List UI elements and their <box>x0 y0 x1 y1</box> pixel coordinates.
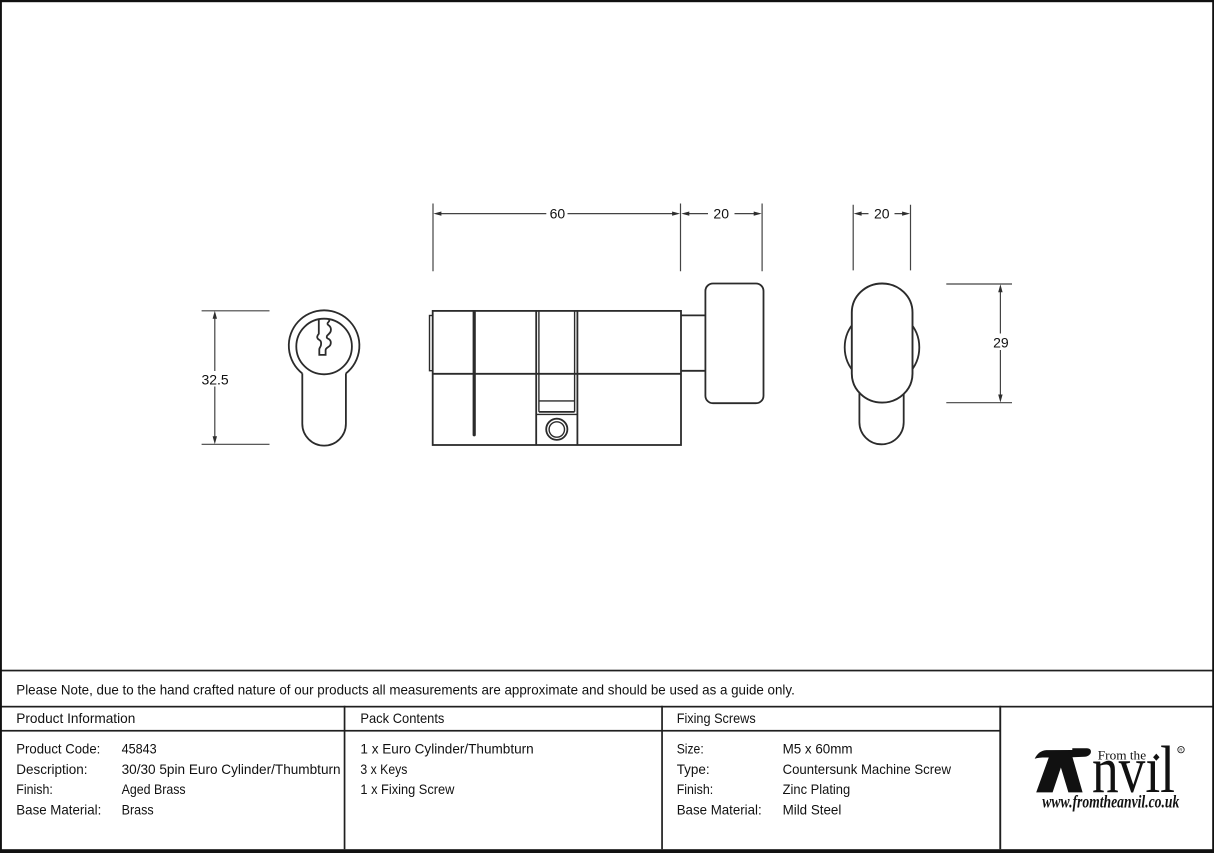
svg-text:Finish:: Finish: <box>677 781 714 797</box>
svg-text:Fixing Screws: Fixing Screws <box>677 710 756 726</box>
svg-text:Pack Contents: Pack Contents <box>360 710 444 726</box>
svg-text:Base Material:: Base Material: <box>16 801 101 817</box>
svg-text:32.5: 32.5 <box>201 372 228 388</box>
svg-text:Size:: Size: <box>677 741 704 757</box>
svg-text:1 x Euro Cylinder/Thumbturn: 1 x Euro Cylinder/Thumbturn <box>360 741 533 757</box>
svg-text:Zinc Plating: Zinc Plating <box>783 781 851 797</box>
svg-text:Type:: Type: <box>677 761 710 777</box>
svg-text:60: 60 <box>550 205 566 221</box>
svg-text:Brass: Brass <box>122 801 154 817</box>
svg-text:R: R <box>1179 747 1182 752</box>
svg-text:3 x Keys: 3 x Keys <box>360 761 407 777</box>
svg-text:Aged Brass: Aged Brass <box>122 781 186 797</box>
svg-text:30/30 5pin Euro Cylinder/Thumb: 30/30 5pin Euro Cylinder/Thumbturn <box>122 761 341 777</box>
svg-text:29: 29 <box>993 334 1009 350</box>
svg-text:M5 x 60mm: M5 x 60mm <box>783 741 853 757</box>
svg-text:Finish:: Finish: <box>16 781 53 797</box>
svg-text:20: 20 <box>874 205 890 221</box>
svg-text:1 x Fixing Screw: 1 x Fixing Screw <box>360 781 455 797</box>
svg-text:Mild Steel: Mild Steel <box>783 801 842 817</box>
svg-text:20: 20 <box>713 205 729 221</box>
svg-text:Base Material:: Base Material: <box>677 801 762 817</box>
svg-text:Countersunk Machine Screw: Countersunk Machine Screw <box>783 761 952 777</box>
svg-text:www.fromtheanvil.co.uk: www.fromtheanvil.co.uk <box>1042 792 1179 812</box>
svg-text:Product Information: Product Information <box>16 710 135 726</box>
svg-text:Description:: Description: <box>16 761 87 777</box>
svg-text:45843: 45843 <box>122 741 157 757</box>
svg-text:Product Code:: Product Code: <box>16 741 100 757</box>
svg-text:Please Note, due to the hand c: Please Note, due to the hand crafted nat… <box>16 682 795 698</box>
